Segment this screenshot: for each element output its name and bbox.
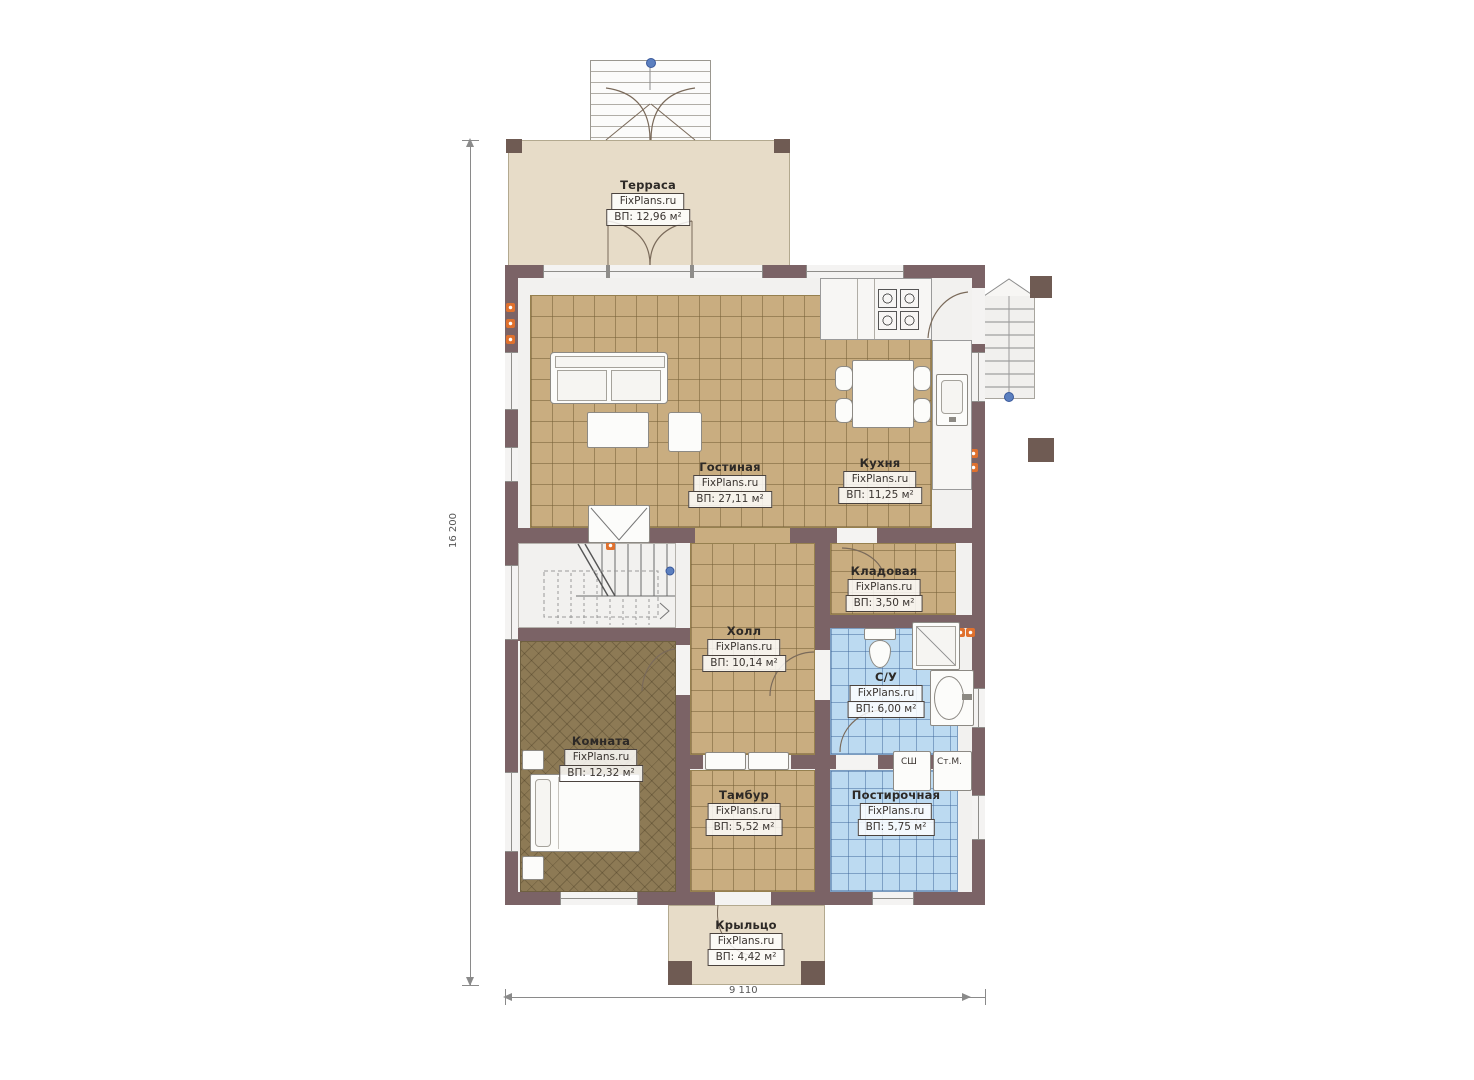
- exterior-post: [1028, 438, 1054, 462]
- stove-icon: [878, 289, 919, 330]
- room-name: Крыльцо: [715, 918, 777, 932]
- watermark: FixPlans.ru: [708, 639, 781, 656]
- room-area: ВП: 4,42 м²: [708, 949, 785, 966]
- window: [505, 352, 518, 410]
- chair-icon: [913, 366, 931, 391]
- bathroom-sink-icon: [934, 676, 964, 720]
- watermark: FixPlans.ru: [708, 803, 781, 820]
- stair-marker-dot: [1004, 392, 1014, 402]
- window: [972, 795, 985, 840]
- door-leaf: [705, 752, 746, 770]
- laundry-door-opening: [836, 755, 878, 769]
- room-area: ВП: 5,52 м²: [706, 819, 783, 836]
- power-outlet-icon: [506, 303, 515, 312]
- window: [872, 892, 914, 905]
- faucet-icon: [962, 694, 972, 700]
- room-name: Гостиная: [699, 460, 760, 474]
- room-label-porch: Крыльцо FixPlans.ru ВП: 4,42 м²: [708, 918, 785, 966]
- room-area: ВП: 27,11 м²: [688, 491, 772, 508]
- room-label-hall: Холл FixPlans.ru ВП: 10,14 м²: [702, 624, 786, 672]
- window: [505, 565, 518, 640]
- dryer-label: СШ: [901, 757, 917, 767]
- chair-icon: [913, 398, 931, 423]
- room-label-bedroom: Комната FixPlans.ru ВП: 12,32 м²: [559, 734, 643, 782]
- sofa-icon: [550, 352, 668, 404]
- window: [505, 772, 518, 852]
- terrace-stairs-door-arcs-icon: [590, 60, 711, 142]
- nightstand-icon: [522, 856, 544, 880]
- nightstand-icon: [522, 750, 544, 770]
- dimension-tick: [462, 140, 479, 141]
- room-area: ВП: 10,14 м²: [702, 655, 786, 672]
- coffee-table-icon: [587, 412, 649, 448]
- dimension-tick: [505, 989, 506, 1005]
- shower-icon: [912, 622, 960, 670]
- chair-icon: [835, 366, 853, 391]
- terrace-post: [774, 139, 790, 153]
- bathroom-door-opening: [815, 650, 830, 700]
- watermark: FixPlans.ru: [848, 579, 921, 596]
- terrace-post: [506, 139, 522, 153]
- dimension-tick: [985, 989, 986, 1005]
- room-area: ВП: 12,32 м²: [559, 765, 643, 782]
- power-outlet-icon: [966, 628, 975, 637]
- watermark: FixPlans.ru: [612, 193, 685, 210]
- room-label-laundry: Постирочная FixPlans.ru ВП: 5,75 м²: [852, 788, 940, 836]
- room-name: Комната: [572, 734, 630, 748]
- bedroom-door-opening: [676, 645, 690, 695]
- wall-hall-wet: [815, 543, 830, 892]
- floor-plan-canvas: 16 200 9 110: [0, 0, 1474, 1080]
- window: [560, 892, 638, 905]
- porch-post: [668, 961, 692, 985]
- armchair-icon: [668, 412, 702, 452]
- interior-staircase: [518, 543, 676, 628]
- room-name: Кладовая: [851, 564, 918, 578]
- side-entrance-stairs: [983, 275, 1035, 401]
- fireplace-vent-icon: [588, 505, 650, 543]
- toilet-tank-icon: [864, 628, 896, 640]
- horizontal-dimension-line: [505, 997, 985, 998]
- room-name: Тамбур: [719, 788, 769, 802]
- exterior-post: [1030, 276, 1052, 298]
- room-label-terrace: Терраса FixPlans.ru ВП: 12,96 м²: [606, 178, 690, 226]
- room-area: ВП: 6,00 м²: [848, 701, 925, 718]
- room-label-living: Гостиная FixPlans.ru ВП: 27,11 м²: [688, 460, 772, 508]
- vertical-dimension-label: 16 200: [448, 513, 459, 548]
- watermark: FixPlans.ru: [565, 749, 638, 766]
- room-area: ВП: 12,96 м²: [606, 209, 690, 226]
- chair-icon: [835, 398, 853, 423]
- window: [505, 447, 518, 482]
- counter-divider: [857, 279, 858, 339]
- watermark: FixPlans.ru: [850, 685, 923, 702]
- window: [806, 265, 904, 278]
- wall-stairs-bedroom: [518, 628, 690, 641]
- watermark: FixPlans.ru: [694, 475, 767, 492]
- dimension-arrow-right: [962, 993, 971, 1001]
- room-label-bathroom: С/У FixPlans.ru ВП: 6,00 м²: [848, 670, 925, 718]
- side-door-arc-icon: [926, 290, 970, 342]
- dining-table-icon: [852, 360, 914, 428]
- vertical-dimension-line: [470, 140, 471, 985]
- watermark: FixPlans.ru: [844, 471, 917, 488]
- dimension-tick: [462, 985, 479, 986]
- power-outlet-icon: [506, 319, 515, 328]
- room-name: С/У: [875, 670, 897, 684]
- washer-label: Ст.М.: [937, 757, 962, 767]
- room-label-storage: Кладовая FixPlans.ru ВП: 3,50 м²: [846, 564, 923, 612]
- room-area: ВП: 5,75 м²: [858, 819, 935, 836]
- door-leaf: [748, 752, 789, 770]
- horizontal-dimension-label: 9 110: [729, 985, 758, 996]
- bed-icon: [530, 774, 640, 852]
- kitchen-sink-icon: [936, 374, 968, 426]
- bedroom-door-arc-icon: [640, 647, 678, 693]
- stair-marker-dot: [646, 58, 656, 68]
- room-label-kitchen: Кухня FixPlans.ru ВП: 11,25 м²: [838, 456, 922, 504]
- porch-post: [801, 961, 825, 985]
- watermark: FixPlans.ru: [860, 803, 933, 820]
- counter-divider: [874, 279, 875, 339]
- power-outlet-icon: [506, 335, 515, 344]
- room-label-vestibule: Тамбур FixPlans.ru ВП: 5,52 м²: [706, 788, 783, 836]
- watermark: FixPlans.ru: [710, 933, 783, 950]
- living-hall-opening: [695, 528, 790, 543]
- room-name: Терраса: [620, 178, 676, 192]
- room-name: Кухня: [860, 456, 901, 470]
- side-door-opening: [972, 288, 985, 344]
- storage-door-opening: [837, 528, 877, 543]
- room-name: Постирочная: [852, 788, 940, 802]
- room-area: ВП: 11,25 м²: [838, 487, 922, 504]
- room-area: ВП: 3,50 м²: [846, 595, 923, 612]
- room-name: Холл: [727, 624, 761, 638]
- window: [972, 352, 985, 402]
